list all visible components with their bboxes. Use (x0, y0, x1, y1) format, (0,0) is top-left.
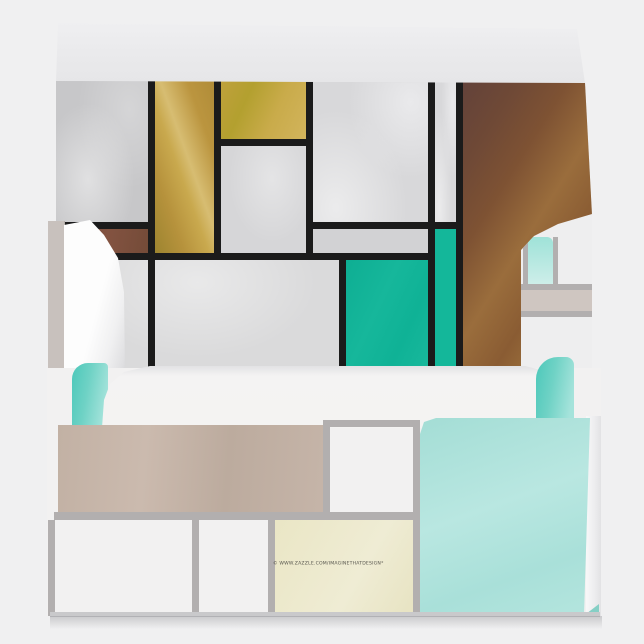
liner-line-h3 (313, 222, 463, 229)
liner-block-gray-small (313, 229, 428, 255)
back-block-taupe (58, 425, 330, 513)
corner-taupe-band (521, 290, 592, 311)
front-aqua-corner-left (72, 363, 108, 427)
watermark-text: © WWW.ZAZZLE.COM/IMAGINETHATDESIGN* (273, 560, 374, 569)
liner-line-v-teal (339, 253, 346, 372)
flap-top-edge (56, 23, 585, 83)
front-aqua-corner-right (536, 357, 574, 423)
liner-line-v2 (214, 81, 221, 255)
back-line-v1 (323, 420, 330, 513)
flap-liner (56, 81, 592, 372)
envelope-product-image: © WWW.ZAZZLE.COM/IMAGINETHATDESIGN* (0, 0, 644, 644)
liner-block-teal (346, 260, 428, 372)
liner-line-v3 (306, 81, 313, 255)
back-line-v-left-edge (48, 520, 55, 616)
back-line-v3 (192, 520, 199, 616)
liner-block-gray-wide (313, 81, 428, 222)
corner-line-h2 (521, 311, 592, 317)
back-line-h-top (330, 420, 420, 427)
envelope-drop-shadow (50, 616, 602, 629)
corner-aqua-block (528, 237, 553, 284)
liner-block-ochre (221, 81, 306, 139)
liner-line-v1 (148, 81, 155, 372)
back-line-h-mid (54, 512, 420, 520)
back-block-aqua (420, 414, 590, 616)
liner-block-gold (155, 81, 214, 255)
liner-block-gray-strip (435, 81, 456, 222)
liner-block-teal-strip (435, 229, 456, 372)
liner-line-h1 (221, 139, 306, 146)
corner-line-right (553, 237, 558, 284)
liner-block-gray-mid (221, 146, 306, 255)
liner-block-gray-left (56, 81, 148, 222)
